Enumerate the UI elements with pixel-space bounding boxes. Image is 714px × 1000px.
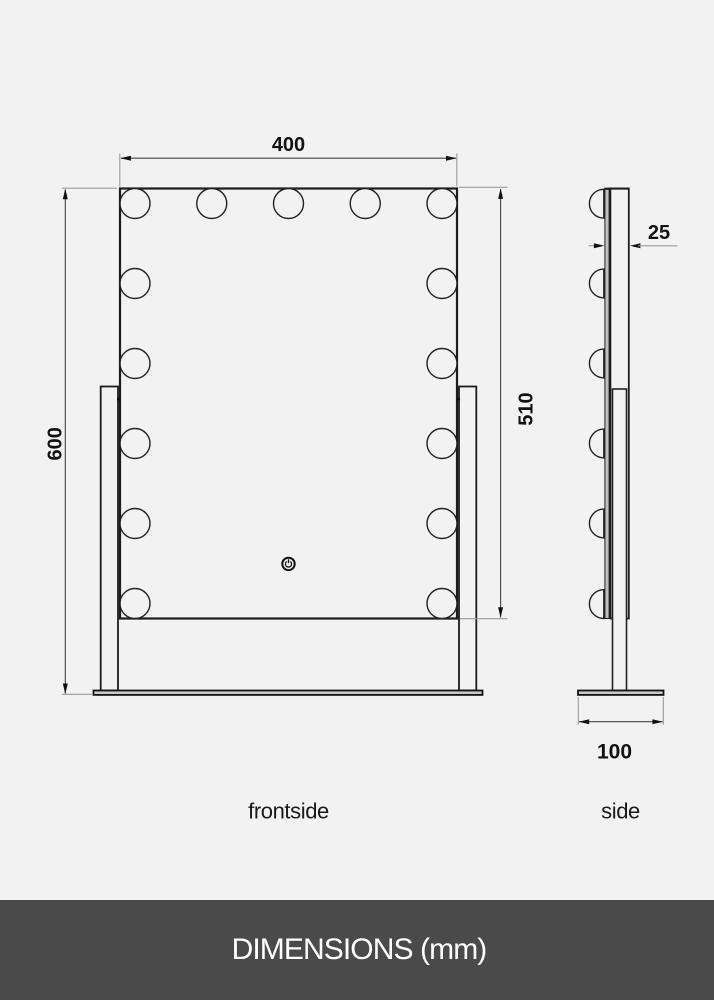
svg-text:100: 100: [597, 740, 632, 763]
svg-text:600: 600: [44, 427, 66, 460]
svg-text:510: 510: [516, 392, 538, 425]
svg-text:side: side: [601, 799, 640, 824]
svg-text:25: 25: [648, 222, 670, 244]
svg-text:400: 400: [272, 134, 305, 156]
svg-text:frontside: frontside: [248, 799, 329, 824]
